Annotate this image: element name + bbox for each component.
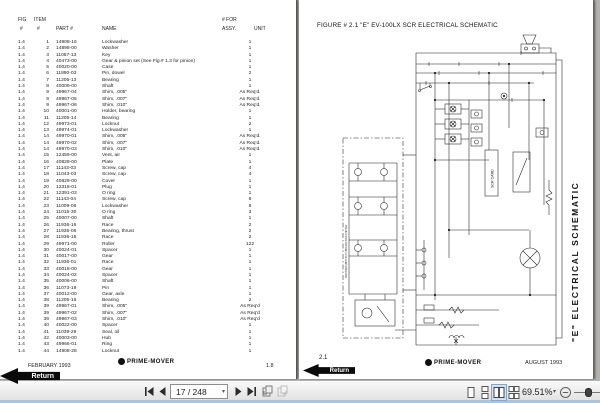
col-fig-num: # (20, 26, 23, 32)
zoom-chevron-down-icon[interactable]: ▾ (553, 388, 556, 395)
brand-name: PRIME-MOVER (434, 360, 481, 366)
brand-footer-right: PRIME-MOVER (425, 359, 481, 366)
continuous-view-button[interactable] (478, 385, 492, 400)
zoom-slider-handle[interactable] (585, 388, 592, 397)
next-view-button[interactable] (276, 385, 289, 398)
page-electrical-schematic: FIGURE # 2.1 "E" EV-100LX SCR ELECTRICAL… (299, 0, 594, 379)
previous-page-icon (156, 385, 169, 398)
last-page-icon (245, 385, 258, 398)
footer-date-right: AUGUST 1993 (525, 360, 562, 366)
parts-table-body: 1.4114908-16Lockwasher11.4214898-00Washe… (18, 40, 288, 355)
page-number-field[interactable]: 17 / 248 ▾ (170, 384, 228, 399)
two-page-view-button[interactable] (492, 385, 506, 400)
footer-date-left: FEBRUARY 1993 (28, 363, 71, 369)
page-number-right: 2.1 (319, 355, 327, 361)
col-forassy-1: # FOR (222, 17, 237, 23)
col-name: NAME (102, 26, 116, 32)
zoom-out-button[interactable] (559, 386, 572, 399)
two-page-continuous-view-button[interactable] (507, 385, 521, 400)
brand-footer-left: PRIME-MOVER (118, 358, 174, 365)
next-page-icon (232, 385, 245, 398)
zoom-level-value[interactable]: 69.51% (522, 387, 553, 397)
continuous-page-icon (478, 385, 492, 400)
zoom-out-icon (559, 386, 572, 399)
scr-card-label: SCR CARD (491, 169, 495, 188)
col-forassy-2: ASSY. (222, 26, 236, 32)
table-row: 1.44414908-28Locknut1 (18, 349, 288, 355)
return-label: Return (31, 373, 54, 380)
first-page-button[interactable] (143, 385, 156, 398)
prime-mover-logo-icon (118, 358, 125, 365)
two-page-icon (492, 385, 506, 400)
return-label: Return (330, 368, 349, 374)
next-view-icon (276, 385, 289, 398)
previous-view-icon (261, 385, 274, 398)
last-page-button[interactable] (245, 385, 258, 398)
page-number-left: 1.8 (266, 363, 274, 369)
prime-mover-logo-icon (425, 359, 432, 366)
schematic-drawing: SCR CARD (299, 0, 593, 379)
pdf-toolbar: 17 / 248 ▾ (0, 380, 600, 403)
next-page-button[interactable] (232, 385, 245, 398)
col-part: PART # (56, 26, 73, 32)
page-parts-list: FIG ITEM # # PART # NAME # FOR ASSY. UNI… (0, 0, 297, 379)
chevron-down-icon[interactable]: ▾ (222, 388, 227, 395)
previous-view-button[interactable] (261, 385, 274, 398)
option-box-note: MACHINES WITH TILT FWD AND TIER SHIFTER (345, 224, 348, 278)
first-page-icon (143, 385, 156, 398)
single-page-icon (464, 385, 478, 400)
col-fig: FIG (18, 17, 26, 23)
single-page-view-button[interactable] (464, 385, 478, 400)
pdf-viewer-window: { "left_page": { "header": { "fig": "FIG… (0, 0, 600, 403)
col-item: ITEM (34, 17, 46, 23)
page-number-value: 17 / 248 (171, 387, 222, 397)
two-page-continuous-icon (507, 385, 521, 400)
vertical-schematic-label: "E" ELECTRICAL SCHEMATIC (570, 160, 580, 342)
brand-name: PRIME-MOVER (127, 359, 174, 365)
previous-page-button[interactable] (156, 385, 169, 398)
col-unit: UNIT (254, 26, 266, 32)
col-item-num: # (37, 26, 40, 32)
